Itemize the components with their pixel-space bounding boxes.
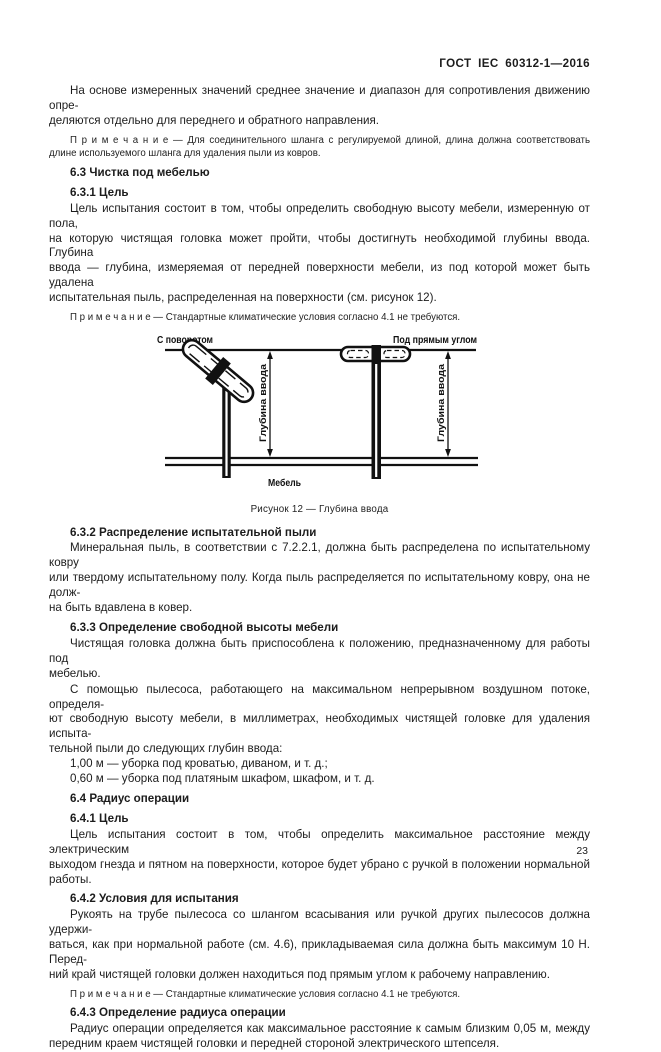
text-line: Радиус операции определяется как максима… [49,1022,590,1037]
heading-text: 6.3.1 Цель [49,186,590,201]
left-dim-label: Глубина ввода [258,363,269,442]
figure-12-drawing: С поворотом Под прямым углом Глубина вво… [155,331,485,493]
label-right-angle: Под прямым углом [393,335,477,346]
note-climate-2: П р и м е ч а н и е — Стандартные климат… [49,988,590,1002]
text-line: на которую чистящая головка может пройти… [49,232,590,262]
paragraph-goal-6-3-1: Цель испытания состоит в том, чтобы опре… [49,202,590,306]
furniture-label: Мебель [268,477,301,489]
text-line: испытательная пыль, распределенная на по… [49,291,590,306]
heading-6-3: 6.3 Чистка под мебелью [49,166,590,181]
text-line: ввода — глубина, измеряемая от передней … [49,261,590,291]
heading-6-4-2: 6.4.2 Условия для испытания [49,892,590,907]
page-number: 23 [576,845,588,857]
text-line: ют свободную высоту мебели, в миллиметра… [49,712,590,742]
text-line: работы. [49,873,590,888]
heading-6-4-3: 6.4.3 Определение радиуса операции [49,1006,590,1021]
content-bottom: 6.3.2 Распределение испытательной пылиМи… [49,526,590,1052]
heading-text: 6.4.3 Определение радиуса операции [49,1006,590,1021]
heading-text: 6.3.2 Распределение испытательной пыли [49,526,590,541]
text-line: ний край чистящей головки должен находит… [49,968,590,983]
heading-text: 6.4 Радиус операции [49,792,590,807]
note-hose-length: П р и м е ч а н и е — Для соединительног… [49,134,590,161]
text-line: П р и м е ч а н и е — Стандартные климат… [49,988,590,1002]
text-line: ваться, как при нормальной работе (см. 4… [49,938,590,968]
text-line: П р и м е ч а н и е — Для соединительног… [49,134,590,148]
text-line: 0,60 м — уборка под платяным шкафом, шка… [49,772,590,787]
text-line: передним краем чистящей головки и передн… [49,1037,590,1052]
text-line: Цель испытания состоит в том, чтобы опре… [49,202,590,232]
paragraph-dust-distribution: Минеральная пыль, в соответствии с 7.2.2… [49,541,590,616]
heading-6-3-2: 6.3.2 Распределение испытательной пыли [49,526,590,541]
figure-caption: Рисунок 12 — Глубина ввода [49,503,590,518]
paragraph-radius-definition: Радиус операции определяется как максима… [49,1022,590,1052]
text-line: Рукоять на трубе пылесоса со шлангом вса… [49,908,590,938]
list-insertion-depths: 1,00 м — уборка под кроватью, диваном, и… [49,757,590,787]
text-line: 1,00 м — уборка под кроватью, диваном, и… [49,757,590,772]
content-top: На основе измеренных значений среднее зн… [49,84,590,325]
heading-6-4-1: 6.4.1 Цель [49,812,590,827]
text-line: На основе измеренных значений среднее зн… [49,84,590,114]
paragraph-resistance: На основе измеренных значений среднее зн… [49,84,590,129]
text-line: на быть вдавлена в ковер. [49,601,590,616]
note-climate-1: П р и м е ч а н и е — Стандартные климат… [49,311,590,325]
text-line: тельной пыли до следующих глубин ввода: [49,742,590,757]
left-nozzle [176,332,260,409]
text-line: или твердому испытательному полу. Когда … [49,571,590,601]
text-line: П р и м е ч а н и е — Стандартные климат… [49,311,590,325]
figure-12: С поворотом Под прямым углом Глубина вво… [49,331,590,518]
heading-6-3-3: 6.3.3 Определение свободной высоты мебел… [49,621,590,636]
heading-text: 6.3.3 Определение свободной высоты мебел… [49,621,590,636]
text-line: мебелью. [49,667,590,682]
text-line: Чистящая головка должна быть приспособле… [49,637,590,667]
text-line: выходом гнезда и пятном на поверхности, … [49,858,590,873]
heading-text: 6.4.1 Цель [49,812,590,827]
page: ГОСТ IEC 60312-1—2016 На основе измеренн… [0,0,661,936]
text-line: С помощью пылесоса, работающего на макси… [49,683,590,713]
heading-text: 6.3 Чистка под мебелью [49,166,590,181]
document-page: { "page": { "header": "ГОСТ IEC 60312-1—… [0,0,661,936]
text-line: длине используемого шланга для удаления … [49,147,590,161]
heading-6-4: 6.4 Радиус операции [49,792,590,807]
paragraph-test-conditions: Рукоять на трубе пылесоса со шлангом вса… [49,908,590,983]
heading-6-3-1: 6.3.1 Цель [49,186,590,201]
text-line: деляются отдельно для переднего и обратн… [49,114,590,129]
text-line: Цель испытания состоит в том, чтобы опре… [49,828,590,858]
paragraph-free-height: С помощью пылесоса, работающего на макси… [49,683,590,758]
page-header: ГОСТ IEC 60312-1—2016 [49,56,590,71]
heading-text: 6.4.2 Условия для испытания [49,892,590,907]
paragraph-goal-6-4-1: Цель испытания состоит в том, чтобы опре… [49,828,590,888]
paragraph-head-position: Чистящая головка должна быть приспособле… [49,637,590,682]
right-dim-label: Глубина ввода [436,363,447,442]
text-line: Минеральная пыль, в соответствии с 7.2.2… [49,541,590,571]
